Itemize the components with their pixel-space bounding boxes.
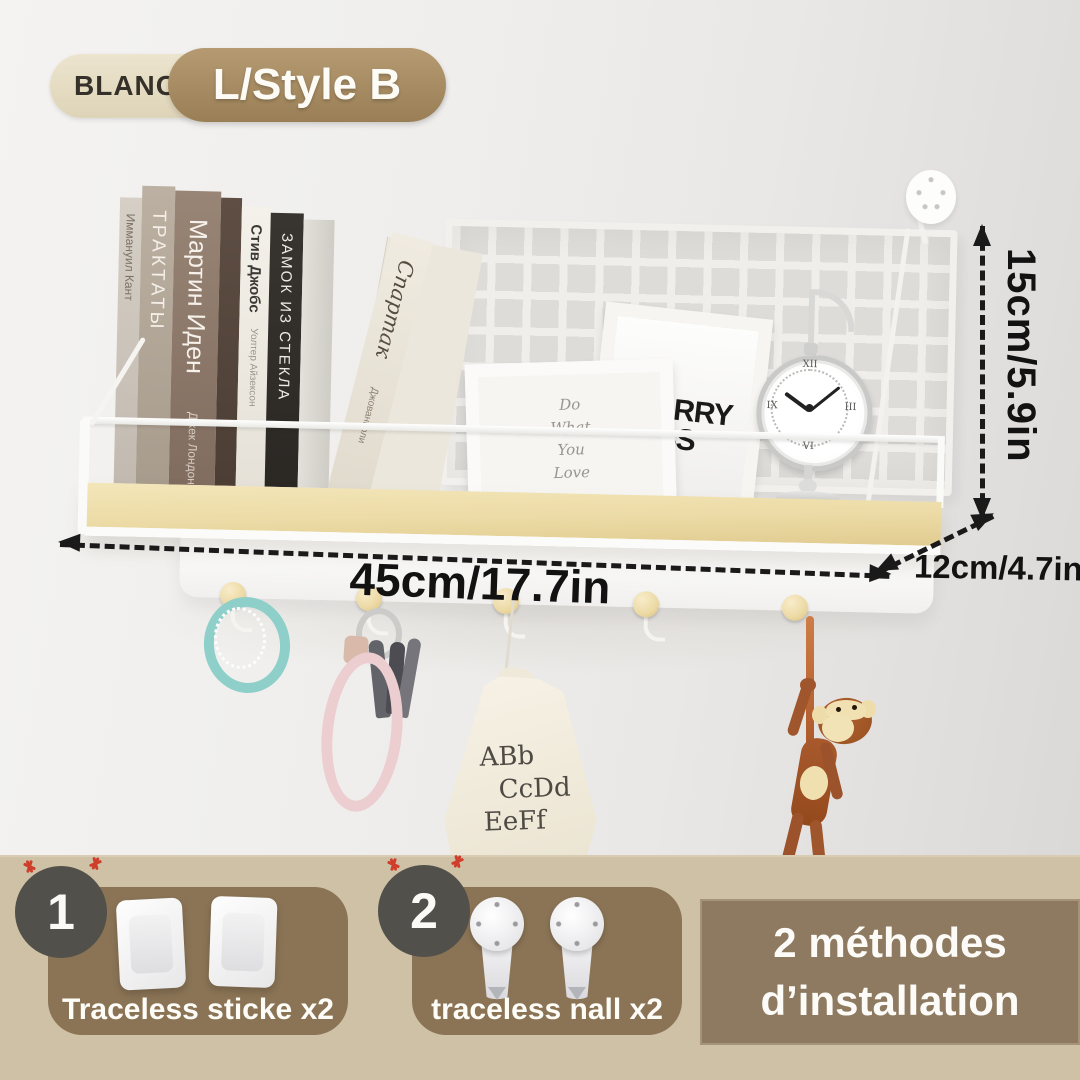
book-spine-title: ТРАКТАТЫ xyxy=(145,210,170,332)
quote-line: Love xyxy=(551,460,592,484)
spark-icon xyxy=(453,855,461,868)
watch-crown xyxy=(804,343,818,355)
height-dimension-label: 15cm/5.9in xyxy=(998,248,1043,558)
wooden-ball-peg xyxy=(782,594,809,621)
rail-post-right xyxy=(936,436,945,508)
adhesive-sticker-icon xyxy=(208,896,277,988)
depth-dimension-label: 12cm/4.7in xyxy=(914,548,1080,589)
quote-line: Do xyxy=(549,393,590,417)
product-image: Иммануил Кант ТРАКТАТЫ Мартин Иден Джек … xyxy=(0,0,1080,1080)
method-1-number: 1 xyxy=(47,884,75,940)
monkey-eye xyxy=(836,707,841,712)
watch-numeral-3: III xyxy=(844,402,856,413)
bag-letters-line: ABb xyxy=(479,739,570,775)
book-spine: Мартин Иден Джек Лондон xyxy=(169,191,222,486)
method-1-label: Traceless sticke x2 xyxy=(48,993,348,1027)
installation-note-line: 2 méthodes xyxy=(773,914,1006,972)
canvas-drawstring-bag: ABb CcDd EeFf xyxy=(442,673,606,867)
arrowhead-left-icon xyxy=(58,533,81,552)
book-spine-title: Иммануил Кант xyxy=(122,213,138,301)
wall-anchor-plate xyxy=(906,170,956,224)
book-spine-title: Стив Джобс xyxy=(246,224,265,313)
spark-icon xyxy=(25,860,33,873)
watch-stand-hook xyxy=(808,289,855,332)
watch-numeral-6: VI xyxy=(803,441,814,452)
nail-hook-icon xyxy=(550,897,606,1001)
watch-numeral-9: IX xyxy=(766,400,777,411)
spark-icon xyxy=(389,858,397,871)
monkey-muzzle xyxy=(822,714,854,742)
watch-numeral-12: XII xyxy=(802,359,817,370)
bag-letters-line: CcDd xyxy=(498,771,571,806)
bag-letters: ABb CcDd EeFf xyxy=(479,739,572,840)
installation-note: 2 méthodes d’installation xyxy=(700,899,1080,1045)
installation-note-line: d’installation xyxy=(760,972,1019,1030)
bag-letters-line: EeFf xyxy=(483,804,572,840)
dashed-line xyxy=(980,226,985,518)
book-spine-title: Мартин Иден xyxy=(180,219,213,374)
size-style-badge-label: L/Style B xyxy=(213,60,401,109)
book-spine-author: Уолтер Айзексон xyxy=(246,329,259,407)
book-spine xyxy=(298,219,335,488)
pocket-watch: XII III VI IX xyxy=(732,251,888,524)
nail-hook-icon xyxy=(470,897,526,1001)
monkey-eye xyxy=(852,705,857,710)
method-2-label: traceless nall x2 xyxy=(412,993,682,1027)
method-2-number-badge: 2 xyxy=(378,865,470,957)
book-spine-author: Джованьоли xyxy=(356,386,381,444)
quote-text: Do What You Love xyxy=(549,393,592,484)
size-style-badge: L/Style B xyxy=(168,48,446,122)
color-badge-label: BLANC xyxy=(74,54,177,118)
adhesive-sticker-icon xyxy=(116,897,187,990)
method-2-number: 2 xyxy=(410,883,438,939)
watch-stand-stem xyxy=(808,293,815,349)
arrowhead-up-icon xyxy=(973,224,991,246)
method-1-number-badge: 1 xyxy=(15,866,107,958)
quote-line: You xyxy=(551,438,592,462)
spark-icon xyxy=(91,857,99,870)
book-spine-title: ЗАМОК ИЗ СТЕКЛА xyxy=(275,233,296,402)
